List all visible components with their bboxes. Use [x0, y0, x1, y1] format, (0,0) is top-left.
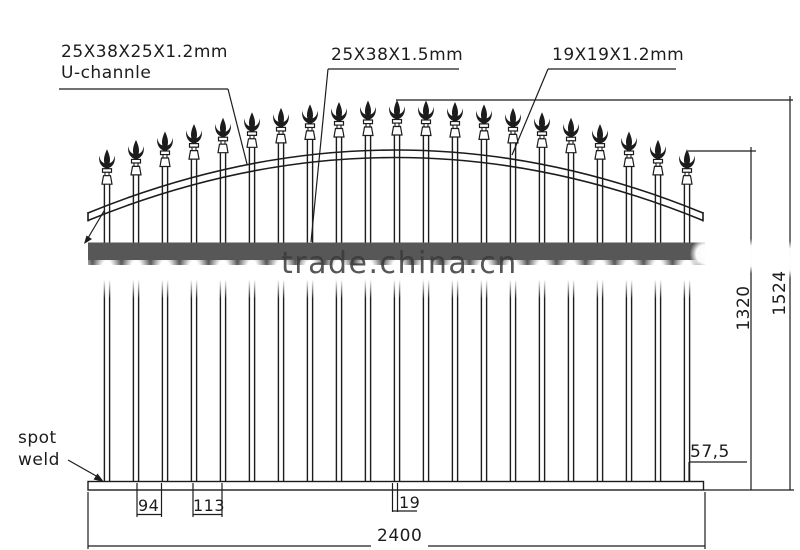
- finial-spear-icon: [447, 102, 463, 122]
- finial-collar: [392, 127, 402, 136]
- top-rail-size-label: 25X38X1.5mm: [331, 46, 463, 66]
- finial-collar: [508, 134, 518, 143]
- finial-collar: [421, 127, 431, 136]
- picket-size-label: 19X19X1.2mm: [552, 46, 684, 66]
- finial-spear-icon: [360, 101, 376, 121]
- fade-blob-dim-1320: [740, 239, 762, 273]
- finial-spear-icon: [505, 108, 521, 128]
- finial-collar: [450, 129, 460, 138]
- finial-spear-icon: [563, 118, 579, 138]
- finial-collar: [363, 127, 373, 136]
- dim-picket-width: 19: [399, 494, 420, 512]
- arch-end-weld-arrow: [84, 211, 104, 244]
- finial-collar: [131, 166, 141, 175]
- finial-spear-icon: [389, 100, 405, 120]
- finial-collar: [537, 139, 547, 148]
- finial-spear-icon: [331, 102, 347, 122]
- finial-spear-icon: [273, 108, 289, 128]
- finial-collar: [160, 158, 170, 167]
- finial-collar: [566, 144, 576, 153]
- callout-leaders: [59, 69, 676, 242]
- u-channel-size-label: 25X38X25X1.2mm: [61, 43, 228, 63]
- finial-collar: [247, 139, 257, 148]
- watermark: trade.china.cn: [281, 246, 518, 281]
- spot-weld-leader: [68, 460, 104, 482]
- finial-collar: [218, 144, 228, 153]
- finial-collar: [334, 129, 344, 138]
- fade-blob-dim-1524: [779, 241, 800, 278]
- finial-spear-icon: [418, 101, 434, 121]
- dim-overall-width: 2400: [371, 527, 428, 547]
- finial-collar: [102, 176, 112, 185]
- finial-spear-icon: [186, 124, 202, 144]
- finial-spear-icon: [476, 104, 492, 124]
- finial-spear-icon: [157, 132, 173, 152]
- finial-collar: [653, 166, 663, 175]
- dim-rail-end-offset: 57,5: [690, 443, 730, 463]
- arch-rail: [88, 150, 703, 222]
- finial-collar: [305, 131, 315, 140]
- finial-spear-icon: [99, 149, 115, 169]
- u-channel-name-label: U-channle: [61, 64, 151, 84]
- finial-collar: [276, 134, 286, 143]
- finial-spear-icon: [215, 118, 231, 138]
- dim-picket-height: 1320: [734, 278, 754, 338]
- dim-picket-gap: 94: [138, 497, 159, 515]
- fence-technical-drawing: trade.china.cn 25X38X25X1.2mm U-channle …: [0, 0, 800, 550]
- finial-collar: [479, 131, 489, 140]
- fade-blob-bar-end: [690, 238, 720, 270]
- finial-collar: [189, 151, 199, 160]
- finial-spear-icon: [650, 140, 666, 160]
- finial-collar: [624, 158, 634, 167]
- finial-collar: [595, 151, 605, 160]
- finial-spear-icon: [621, 132, 637, 152]
- finial-spear-icon: [128, 140, 144, 160]
- spot-weld-label-line1: spot: [18, 429, 57, 449]
- finial-spear-icon: [244, 112, 260, 132]
- spot-weld-label-line2: weld: [18, 451, 60, 471]
- finial-spear-icon: [302, 104, 318, 124]
- finial-spear-icon: [534, 112, 550, 132]
- finial-spear-icon: [679, 149, 695, 169]
- finial-spear-icon: [592, 124, 608, 144]
- bottom-rail: [88, 482, 704, 491]
- finial-collar: [682, 176, 692, 185]
- dim-picket-pitch: 113: [193, 497, 225, 515]
